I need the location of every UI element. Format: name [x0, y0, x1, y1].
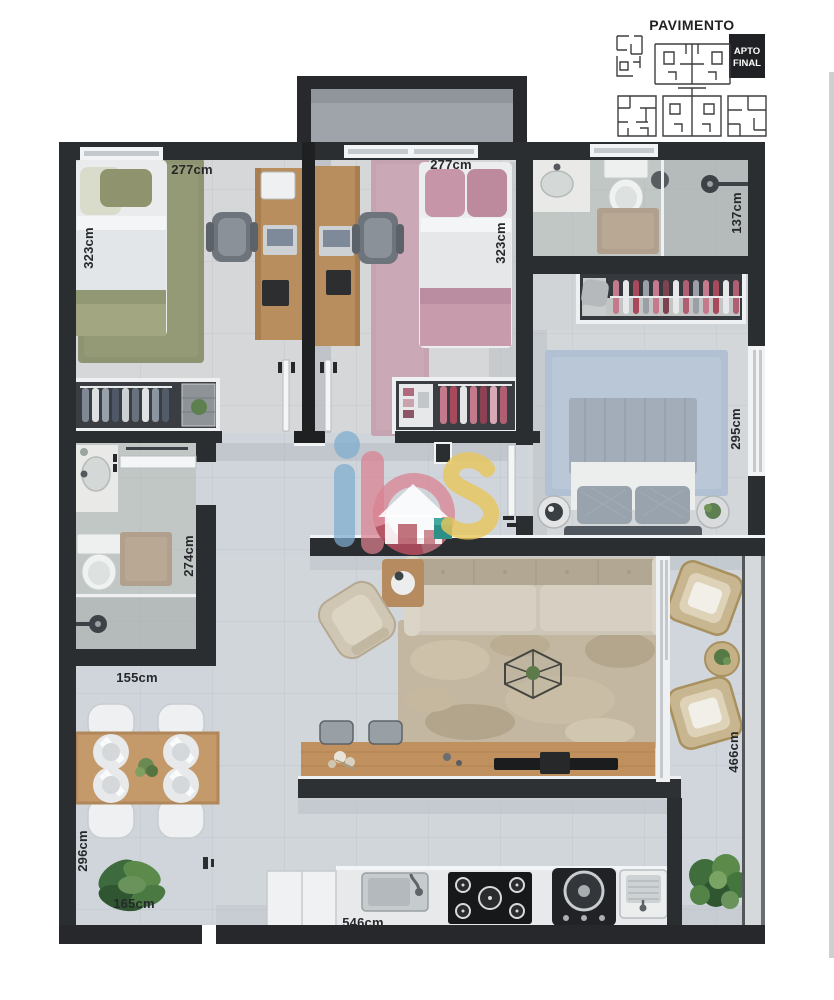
- svg-text:165cm: 165cm: [113, 896, 154, 911]
- svg-text:137cm: 137cm: [729, 192, 744, 233]
- svg-text:546cm: 546cm: [342, 915, 383, 930]
- svg-text:APTO: APTO: [734, 46, 760, 57]
- svg-text:155cm: 155cm: [116, 670, 157, 685]
- svg-text:PAVIMENTO: PAVIMENTO: [649, 17, 734, 33]
- svg-text:277cm: 277cm: [171, 162, 212, 177]
- svg-text:296cm: 296cm: [75, 830, 90, 871]
- svg-text:FINAL: FINAL: [733, 58, 761, 69]
- svg-text:274cm: 274cm: [181, 535, 196, 576]
- svg-text:295cm: 295cm: [728, 408, 743, 449]
- svg-text:277cm: 277cm: [430, 157, 471, 172]
- svg-text:323cm: 323cm: [81, 227, 96, 268]
- svg-text:466cm: 466cm: [726, 731, 741, 772]
- svg-text:323cm: 323cm: [493, 222, 508, 263]
